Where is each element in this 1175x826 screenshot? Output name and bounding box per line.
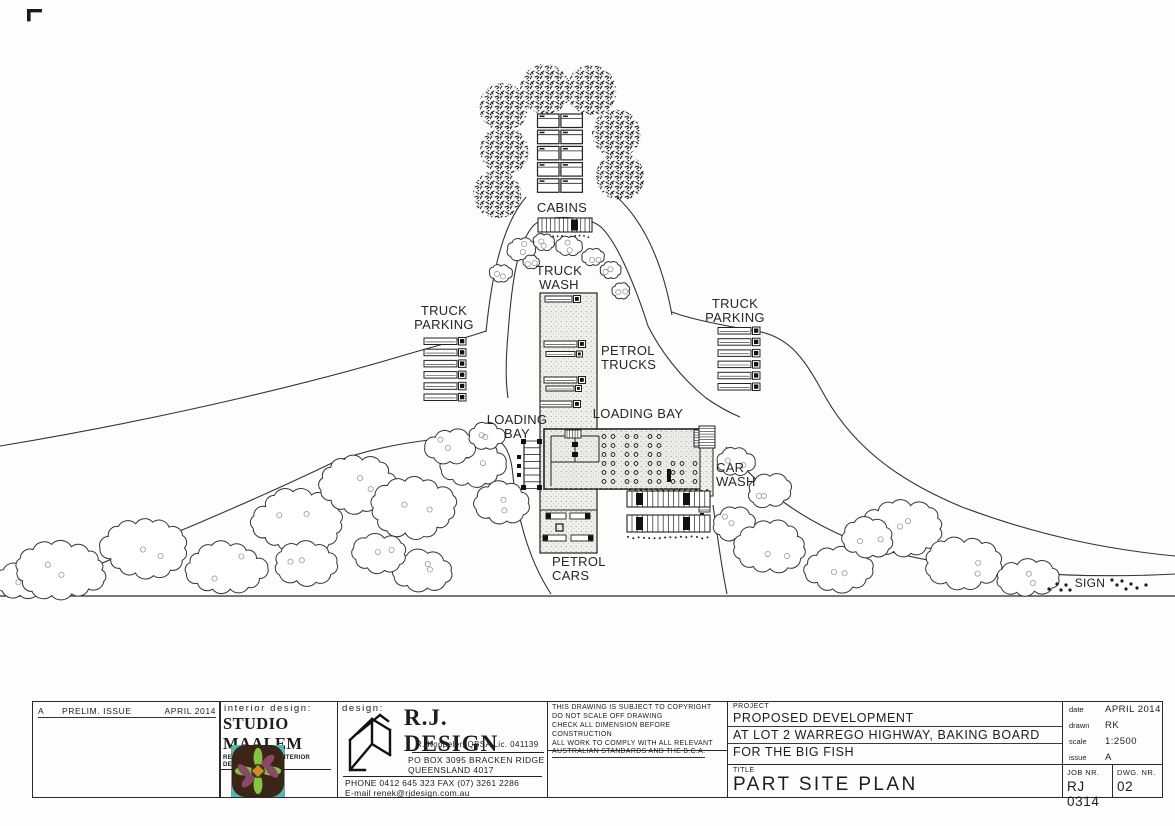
- cabins-label: CABINS: [537, 201, 587, 215]
- date-value: APRIL 2014: [1105, 704, 1161, 715]
- meta-issue-row: issue A: [1063, 749, 1163, 765]
- scale-value: 1:2500: [1105, 736, 1137, 747]
- rj-design-logo: [343, 713, 407, 775]
- drawn-value: RK: [1105, 720, 1119, 731]
- truck-parking-right-label: TRUCK PARKING: [705, 297, 765, 325]
- project-line3: FOR THE BIG FISH: [728, 744, 1062, 760]
- revision-description: PRELIM. ISSUE: [62, 706, 164, 716]
- petrol-trucks-label: PETROL TRUCKS: [601, 344, 656, 372]
- rj-address-line1: PO BOX 3095 BRACKEN RIDGE: [408, 755, 545, 765]
- dwg-number-value: 02: [1113, 777, 1163, 794]
- meta-date-row: date APRIL 2014: [1063, 701, 1163, 717]
- interior-design-heading: interior design:: [220, 701, 337, 714]
- project-line1: PROPOSED DEVELOPMENT: [728, 710, 1062, 727]
- car-wash-label: CAR WASH: [716, 461, 756, 489]
- project-cell: PROJECT PROPOSED DEVELOPMENT AT LOT 2 WA…: [727, 701, 1062, 765]
- dwg-number-cell: DWG. NR. 02: [1112, 765, 1163, 798]
- copyright-line: ALL WORK TO COMPLY WITH ALL RELEVANT: [552, 740, 727, 749]
- studio-maalem-logo: [231, 745, 285, 797]
- car-parking-rows: [627, 489, 710, 540]
- drawing-sheet: CABINS TRUCK WASH TRUCK PARKING TRUCK PA…: [0, 0, 1175, 826]
- title-cell: TITLE PART SITE PLAN: [727, 765, 1062, 798]
- cabins: [538, 114, 593, 238]
- car-wash-strip: [699, 426, 715, 530]
- interior-design-cell: interior design: STUDIO MAALEM RENE KAPP…: [220, 701, 337, 798]
- divider: [343, 776, 542, 777]
- revision-cell: A PRELIM. ISSUE APRIL 2014: [32, 701, 220, 798]
- copyright-line: CHECK ALL DIMENSION BEFORE CONSTRUCTION: [552, 722, 727, 740]
- meta-drawn-row: drawn RK: [1063, 717, 1163, 733]
- truck-wash-label: TRUCK WASH: [536, 264, 582, 292]
- job-number-value: RJ 0314: [1063, 777, 1112, 809]
- loading-bay-top-label: LOADING BAY: [593, 407, 683, 421]
- revision-row: A PRELIM. ISSUE APRIL 2014: [38, 704, 216, 718]
- designer-cell: design: R.J. DESIGN R. Koppeler, QBSA Li…: [337, 701, 547, 798]
- drawn-label: drawn: [1069, 721, 1105, 730]
- copyright-cell: THIS DRAWING IS SUBJECT TO COPYRIGHT DO …: [547, 701, 727, 798]
- revision-date: APRIL 2014: [164, 706, 216, 716]
- truck-parking-left-label: TRUCK PARKING: [414, 304, 474, 332]
- divider: [412, 752, 544, 753]
- copyright-line: DO NOT SCALE OFF DRAWING: [552, 713, 727, 722]
- dwg-number-label: DWG. NR.: [1113, 765, 1163, 777]
- rj-design-name: R.J. DESIGN: [404, 705, 547, 757]
- drawing-title: PART SITE PLAN: [728, 774, 1062, 796]
- main-building: [544, 429, 713, 489]
- issue-label: issue: [1069, 753, 1105, 762]
- project-label: PROJECT: [728, 701, 1062, 710]
- petrol-cars-label: PETROL CARS: [552, 555, 606, 583]
- rj-credentials: R. Koppeler, QBSA Lic. 041139: [416, 740, 539, 749]
- rj-email: E-mail renek@rjdesign.com.au: [345, 788, 470, 798]
- issue-value: A: [1105, 752, 1112, 763]
- job-number-cell: JOB NR. RJ 0314: [1062, 765, 1112, 798]
- meta-cell: date APRIL 2014 drawn RK scale 1:2500 is…: [1062, 701, 1163, 765]
- meta-scale-row: scale 1:2500: [1063, 733, 1163, 749]
- revision-letter: A: [38, 706, 62, 716]
- corner-mark: [27, 9, 42, 21]
- sign-label: SIGN: [1075, 577, 1106, 590]
- rj-phone-fax: PHONE 0412 645 323 FAX (07) 3261 2286: [345, 778, 519, 788]
- scale-label: scale: [1069, 737, 1105, 746]
- rj-address-line2: QUEENSLAND 4017: [408, 765, 494, 775]
- project-line2: AT LOT 2 WARREGO HIGHWAY, BAKING BOARD: [728, 727, 1062, 744]
- divider: [548, 750, 727, 751]
- date-label: date: [1069, 705, 1105, 714]
- title-label: TITLE: [728, 765, 1062, 774]
- job-number-label: JOB NR.: [1063, 765, 1112, 777]
- loading-dock: [517, 439, 542, 490]
- loading-bay-left-label: LOADING BAY: [487, 413, 548, 441]
- copyright-line: THIS DRAWING IS SUBJECT TO COPYRIGHT: [552, 704, 727, 713]
